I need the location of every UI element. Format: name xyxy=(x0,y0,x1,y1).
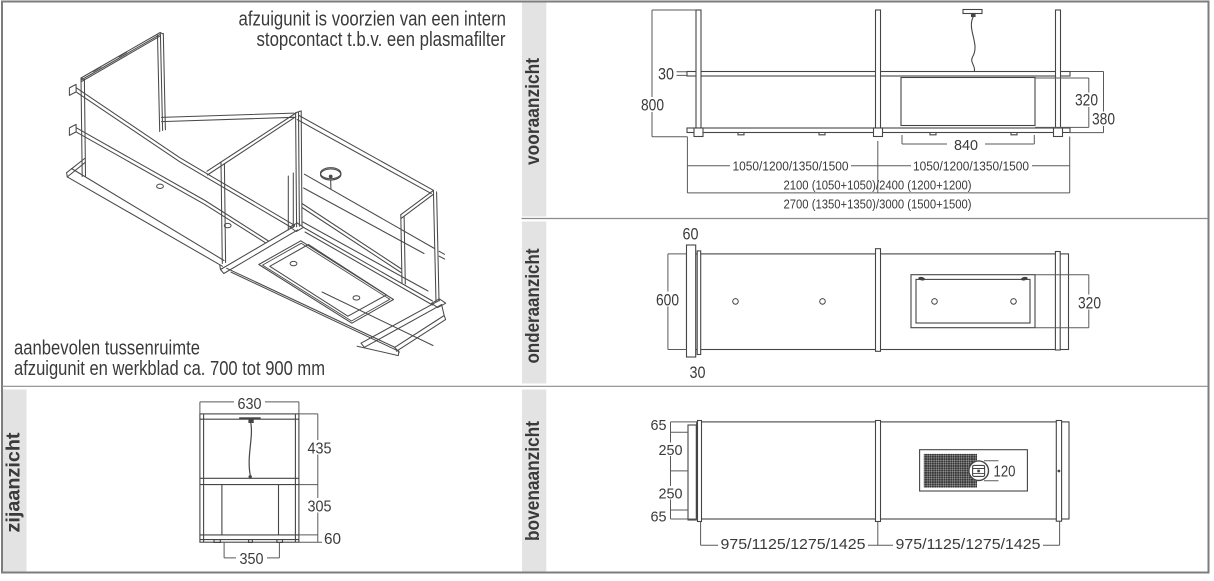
svg-text:800: 800 xyxy=(641,96,664,115)
svg-text:65: 65 xyxy=(651,417,667,434)
svg-text:1050/1200/1350/1500: 1050/1200/1350/1500 xyxy=(913,158,1029,173)
svg-text:350: 350 xyxy=(240,551,264,568)
svg-text:60: 60 xyxy=(324,531,341,548)
svg-text:380: 380 xyxy=(1092,110,1115,129)
svg-text:975/1125/1275/1425: 975/1125/1275/1425 xyxy=(721,536,866,553)
svg-text:30: 30 xyxy=(690,363,706,382)
svg-text:320: 320 xyxy=(1078,293,1101,312)
svg-text:600: 600 xyxy=(656,290,679,309)
svg-text:120: 120 xyxy=(994,463,1016,480)
svg-text:975/1125/1275/1425: 975/1125/1275/1425 xyxy=(896,536,1041,553)
svg-text:320: 320 xyxy=(1075,91,1098,110)
svg-text:zijaanzicht: zijaanzicht xyxy=(4,432,25,533)
svg-text:435: 435 xyxy=(308,440,332,457)
svg-text:vooraanzicht: vooraanzicht xyxy=(523,57,544,165)
svg-text:30: 30 xyxy=(658,65,674,84)
svg-text:65: 65 xyxy=(651,508,667,525)
svg-text:onderaanzicht: onderaanzicht xyxy=(523,248,544,364)
svg-text:afzuigunit is voorzien van een: afzuigunit is voorzien van een intern xyxy=(239,9,507,31)
svg-text:305: 305 xyxy=(308,498,332,515)
svg-text:afzuigunit en werkblad ca. 700: afzuigunit en werkblad ca. 700 tot 900 m… xyxy=(14,358,325,380)
svg-text:1050/1200/1350/1500: 1050/1200/1350/1500 xyxy=(733,158,849,173)
svg-text:60: 60 xyxy=(683,225,699,244)
svg-text:bovenaanzicht: bovenaanzicht xyxy=(523,420,544,541)
svg-text:2700 (1350+1350)/3000 (1500+15: 2700 (1350+1350)/3000 (1500+1500) xyxy=(784,196,972,211)
svg-text:250: 250 xyxy=(659,442,683,459)
svg-text:stopcontact t.b.v. een plasmaf: stopcontact t.b.v. een plasmafilter xyxy=(257,29,506,51)
svg-text:630: 630 xyxy=(238,396,262,413)
svg-text:2100 (1050+1050)/2400 (1200+12: 2100 (1050+1050)/2400 (1200+1200) xyxy=(784,178,972,193)
svg-text:250: 250 xyxy=(659,485,683,502)
svg-text:aanbevolen tussenruimte: aanbevolen tussenruimte xyxy=(14,338,200,360)
svg-text:840: 840 xyxy=(954,137,978,154)
